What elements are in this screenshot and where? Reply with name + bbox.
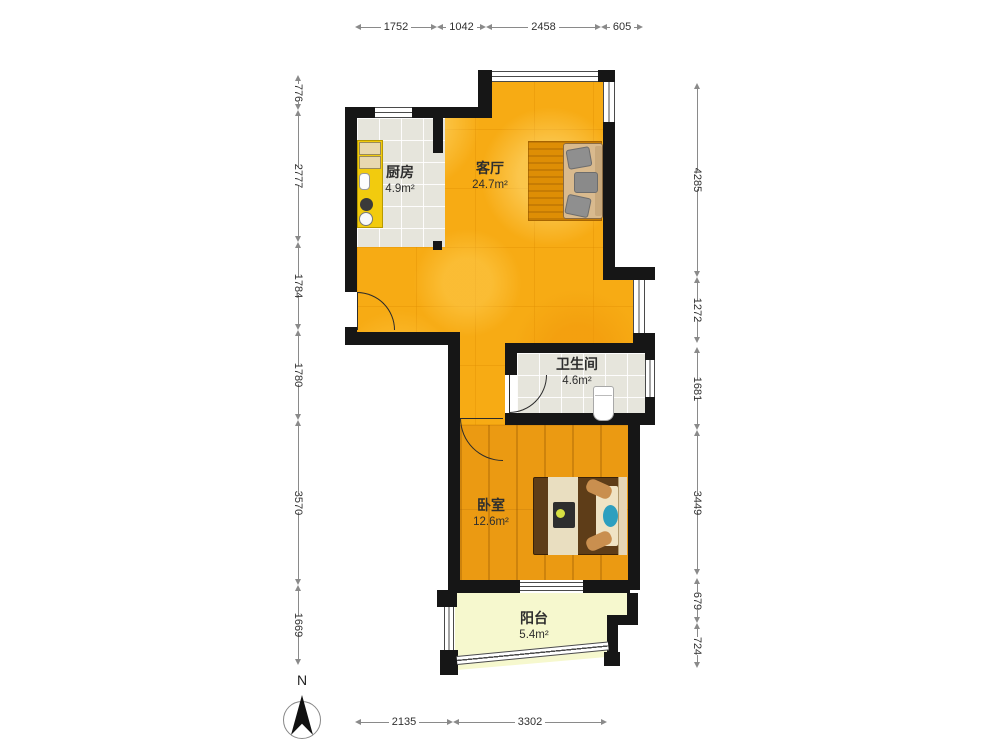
wall-living-top-pillar: [478, 70, 492, 118]
bed-cushion-teal: [603, 505, 618, 527]
stove-burner-icon: [360, 198, 373, 211]
wall-top-right-corner: [598, 70, 615, 82]
dim-value: 679: [688, 591, 706, 609]
toilet-seat-line: [595, 395, 612, 396]
wall-kitchen-top-right: [412, 107, 480, 118]
dim-value: 1752: [381, 21, 411, 33]
wall-bedroom-right: [628, 423, 640, 590]
wall-right-corner-2: [633, 333, 655, 343]
dim-left-3: 1784: [291, 242, 305, 330]
sofa-cushion: [565, 146, 592, 170]
living-right-window-lower: [633, 280, 645, 333]
living-label: 客厅 24.7m²: [458, 160, 522, 192]
wall-balcony-step: [607, 615, 638, 625]
bed-tray-lamp: [556, 509, 565, 518]
dim-value: 776: [289, 83, 307, 101]
living-name: 客厅: [458, 160, 522, 178]
dim-value: 724: [688, 636, 706, 654]
kitchen-cabinet: [359, 142, 381, 155]
compass: N: [278, 672, 326, 742]
dim-bottom-1: 2135: [355, 715, 453, 729]
bedroom-name: 卧室: [460, 497, 522, 515]
bathroom-window: [645, 360, 655, 397]
wall-bathroom-left: [505, 343, 517, 375]
bathroom-name: 卫生间: [543, 356, 611, 374]
dim-left-4: 1780: [291, 330, 305, 420]
wall-balcony-corner-bl: [440, 650, 458, 675]
compass-north-label: N: [278, 672, 326, 688]
dim-value: 3570: [289, 490, 307, 514]
kitchen-name: 厨房: [372, 164, 428, 182]
living-top-window: [492, 71, 598, 82]
bathroom-area: 4.6m²: [543, 374, 611, 388]
bedroom-label: 卧室 12.6m²: [460, 497, 522, 529]
dim-value: 605: [610, 21, 634, 33]
balcony-label: 阳台 5.4m²: [503, 610, 565, 642]
dim-bottom-2: 3302: [453, 715, 607, 729]
wall-bathroom-top: [505, 343, 645, 353]
kitchen-area: 4.9m²: [372, 182, 428, 196]
kitchen-window: [375, 107, 412, 118]
balcony-sliding-door: [520, 582, 583, 591]
dim-left-2: 2777: [291, 110, 305, 242]
dim-left-5: 3570: [291, 420, 305, 585]
wall-right-jog: [603, 267, 655, 280]
dim-right-4: 3449: [690, 430, 704, 575]
kitchen-sink: [359, 173, 370, 190]
living-right-window-upper: [603, 82, 615, 122]
dim-value: 1042: [446, 21, 476, 33]
wall-right-upper: [603, 122, 615, 280]
balcony-area: 5.4m²: [503, 628, 565, 642]
bed-headboard: [618, 477, 627, 555]
bathroom-label: 卫生间 4.6m²: [543, 356, 611, 388]
wall-left-lower: [448, 332, 460, 592]
dim-value: 2458: [528, 21, 558, 33]
dim-value: 1784: [289, 274, 307, 298]
toilet: [593, 386, 614, 421]
dim-right-5: 679: [690, 578, 704, 623]
wall-kitchen-divider-foot: [433, 241, 442, 250]
wall-bedroom-bottom-right: [583, 580, 630, 593]
dim-value: 2777: [289, 164, 307, 188]
dim-value: 1780: [289, 363, 307, 387]
wall-bathroom-right-upper: [645, 343, 655, 360]
wall-left-upper: [345, 107, 357, 292]
dim-right-3: 1681: [690, 347, 704, 430]
dim-top-4: 605: [601, 20, 643, 34]
wall-balcony-corner-br: [604, 652, 620, 666]
stove-burner-icon: [359, 212, 373, 226]
dim-value: 1669: [289, 613, 307, 637]
bedroom-area: 12.6m²: [460, 515, 522, 529]
dim-value: 1681: [688, 376, 706, 400]
living-area: 24.7m²: [458, 178, 522, 192]
dim-value: 4285: [688, 168, 706, 192]
balcony-name: 阳台: [503, 610, 565, 628]
dim-left-6: 1669: [291, 585, 305, 665]
wall-bedroom-bottom-left: [448, 580, 520, 593]
dim-right-2: 1272: [690, 277, 704, 343]
dim-top-1: 1752: [355, 20, 437, 34]
floorplan-canvas: 厨房 4.9m² 客厅 24.7m² 卫生间 4.6m² 卧室 12.6m² 阳…: [0, 0, 1000, 750]
sofa-cushion: [574, 172, 598, 193]
dim-value: 3449: [688, 490, 706, 514]
dim-value: 3302: [515, 716, 545, 728]
kitchen-label: 厨房 4.9m²: [372, 164, 428, 196]
dim-top-3: 2458: [486, 20, 601, 34]
dim-right-1: 4285: [690, 83, 704, 277]
dim-top-2: 1042: [437, 20, 486, 34]
balcony-left-window: [444, 607, 454, 650]
wall-balcony-corner-tl: [437, 590, 457, 607]
dim-right-6: 724: [690, 623, 704, 668]
wall-kitchen-divider-stub: [433, 118, 443, 153]
dim-value: 2135: [389, 716, 419, 728]
dim-left-1: 776: [291, 75, 305, 110]
wall-living-bottom-left: [345, 332, 460, 345]
dim-value: 1272: [688, 298, 706, 322]
